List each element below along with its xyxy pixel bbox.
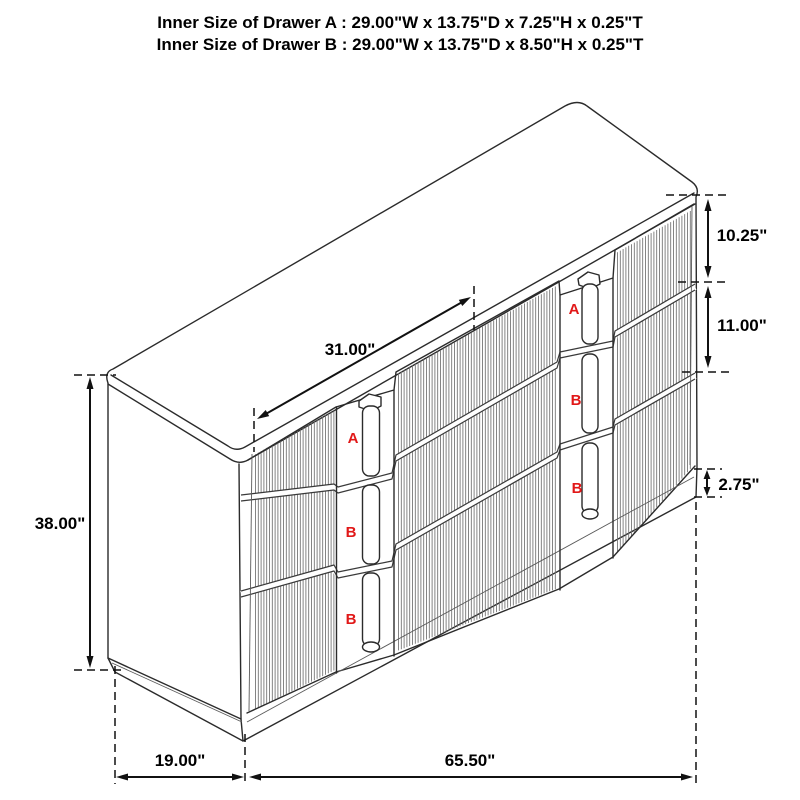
arrowhead-up <box>705 199 712 211</box>
arrowhead-down <box>87 656 94 668</box>
arrowhead-down <box>704 487 711 496</box>
furniture-dimension-diagram: A B B A B B 38.00" 31.00" <box>0 0 800 800</box>
header-line-2: Inner Size of Drawer B : 29.00"W x 13.75… <box>157 35 644 54</box>
handle-bar-segment <box>363 406 380 476</box>
arrowhead-right <box>232 774 244 781</box>
drawer-label-b2-right: B <box>572 480 583 497</box>
handle-bar-segment <box>363 573 380 646</box>
dim-base-height: 2.75" <box>694 469 760 497</box>
arrowhead-left <box>116 774 128 781</box>
arrowhead-up <box>704 470 711 479</box>
handle-bottom-cap <box>582 509 598 519</box>
dim-overall-width: 65.50" <box>249 751 693 781</box>
handle-bottom-cap <box>363 642 380 652</box>
dim-overall-width-label: 65.50" <box>445 751 496 770</box>
cabinet-drawing: A B B A B B <box>107 103 698 742</box>
arrowhead-left <box>249 774 261 781</box>
drawer-label-a-right: A <box>569 301 580 318</box>
dim-drawer-a-height-label: 10.25" <box>717 226 768 245</box>
arrowhead-up <box>705 286 712 298</box>
handle-bar-segment <box>582 443 598 513</box>
handle-bar-segment <box>582 354 598 433</box>
dim-drawer-b-height-label: 11.00" <box>717 316 767 335</box>
header-line-1: Inner Size of Drawer A : 29.00"W x 13.75… <box>157 13 643 32</box>
handle-bar-segment <box>363 485 380 564</box>
diagram-canvas: A B B A B B 38.00" 31.00" <box>0 0 800 800</box>
arrowhead-down <box>705 356 712 368</box>
handle-left-column <box>359 394 381 652</box>
drawer-label-b1-left: B <box>346 524 357 541</box>
dim-top-surface-width-label: 31.00" <box>325 340 376 359</box>
arrowhead-down <box>705 266 712 278</box>
cabinet-silhouette <box>107 103 698 742</box>
dim-overall-height-label: 38.00" <box>35 514 86 533</box>
drawer-label-b1-right: B <box>571 392 582 409</box>
drawer-label-b2-left: B <box>346 611 357 628</box>
dim-side-depth: 19.00" <box>116 751 244 781</box>
arrowhead-up <box>87 377 94 389</box>
drawer-label-a-left: A <box>348 430 359 447</box>
handle-bar-segment <box>582 284 598 344</box>
header: Inner Size of Drawer A : 29.00"W x 13.75… <box>157 13 644 54</box>
dim-base-height-label: 2.75" <box>718 475 759 494</box>
arrowhead-right <box>681 774 693 781</box>
dim-side-depth-label: 19.00" <box>155 751 206 770</box>
